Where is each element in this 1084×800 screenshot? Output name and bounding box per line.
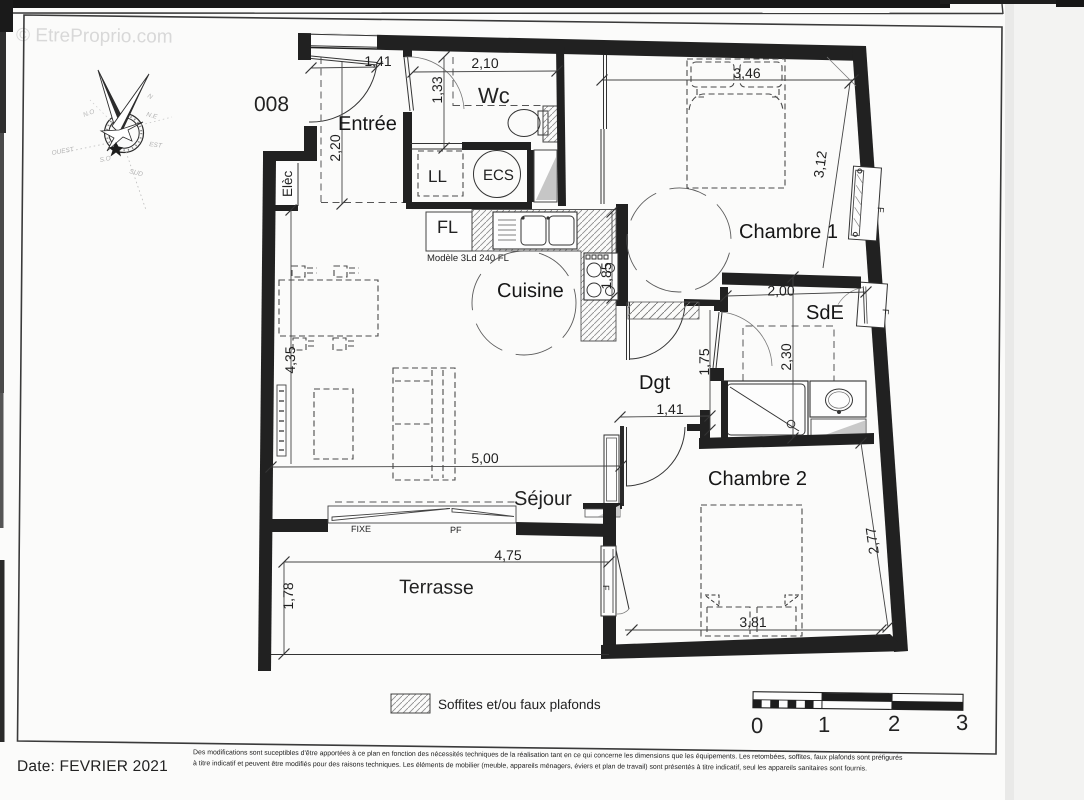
svg-text:LL: LL (428, 167, 447, 186)
svg-text:1,85: 1,85 (598, 262, 614, 289)
svg-text:FL: FL (437, 217, 458, 237)
svg-text:PF: PF (450, 525, 462, 535)
svg-text:5,00: 5,00 (471, 450, 498, 466)
svg-text:Chambre 2: Chambre 2 (708, 468, 807, 490)
svg-text:Entrée: Entrée (338, 113, 397, 135)
svg-text:4,75: 4,75 (494, 547, 521, 563)
svg-text:2,20: 2,20 (327, 134, 343, 161)
svg-text:2,00: 2,00 (767, 283, 794, 299)
svg-text:Soffites et/ou faux plafonds: Soffites et/ou faux plafonds (438, 697, 601, 712)
svg-text:3,46: 3,46 (733, 65, 760, 81)
svg-text:1,75: 1,75 (696, 348, 712, 375)
svg-text:SdE: SdE (806, 302, 844, 324)
svg-text:FIXE: FIXE (351, 524, 371, 534)
svg-text:1,78: 1,78 (280, 582, 296, 609)
svg-text:Cuisine: Cuisine (497, 280, 564, 302)
svg-text:Wc: Wc (478, 83, 510, 108)
svg-text:Chambre 1: Chambre 1 (739, 221, 838, 243)
svg-text:3: 3 (956, 710, 968, 735)
svg-text:Séjour: Séjour (514, 488, 572, 510)
svg-text:Date: FEVRIER 2021: Date: FEVRIER 2021 (17, 758, 168, 775)
svg-text:1,41: 1,41 (656, 401, 683, 417)
svg-text:© EtreProprio.com: © EtreProprio.com (16, 25, 173, 48)
svg-text:2: 2 (888, 711, 900, 736)
svg-text:Terrasse: Terrasse (399, 576, 474, 599)
svg-text:1,41: 1,41 (364, 53, 391, 69)
svg-text:1: 1 (818, 712, 830, 737)
svg-text:0: 0 (751, 713, 763, 738)
svg-text:4,35: 4,35 (282, 346, 298, 373)
svg-text:3,81: 3,81 (739, 614, 766, 630)
svg-text:1,33: 1,33 (429, 76, 445, 103)
svg-text:Elèc: Elèc (280, 170, 295, 197)
svg-text:Dgt: Dgt (639, 372, 671, 394)
svg-text:F: F (601, 585, 611, 591)
svg-text:2,10: 2,10 (471, 55, 498, 71)
svg-text:2,30: 2,30 (778, 343, 794, 370)
svg-text:ECS: ECS (483, 167, 514, 184)
svg-text:008: 008 (254, 93, 289, 116)
